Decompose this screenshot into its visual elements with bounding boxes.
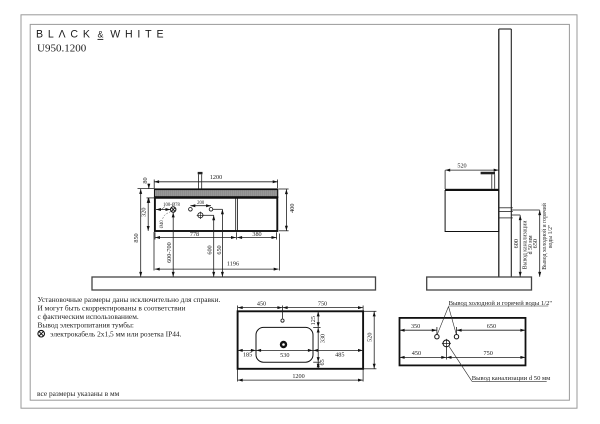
- svg-text:600-700: 600-700: [166, 242, 173, 263]
- svg-text:778: 778: [190, 231, 199, 238]
- svg-text:Вывод электропитания тумбы:: Вывод электропитания тумбы:: [38, 320, 135, 329]
- svg-text:850: 850: [133, 233, 140, 242]
- svg-text:520: 520: [457, 162, 466, 169]
- svg-text:100-Ø78: 100-Ø78: [163, 203, 180, 208]
- svg-text:485: 485: [335, 352, 344, 359]
- svg-text:WHITE: WHITE: [110, 29, 168, 41]
- svg-text:380: 380: [252, 231, 261, 238]
- svg-text:125: 125: [310, 316, 317, 325]
- svg-text:BLΛCK: BLΛCK: [36, 29, 95, 41]
- svg-text:750: 750: [318, 300, 327, 307]
- svg-text:650: 650: [216, 245, 223, 254]
- svg-text:400: 400: [289, 204, 296, 213]
- svg-text:65: 65: [319, 359, 326, 365]
- svg-text:520: 520: [366, 333, 373, 342]
- svg-text:750: 750: [484, 350, 493, 357]
- svg-text:&: &: [98, 30, 104, 40]
- svg-text:600: 600: [513, 239, 520, 248]
- svg-text:80: 80: [142, 177, 149, 183]
- svg-text:530: 530: [280, 352, 289, 359]
- svg-text:U950.1200: U950.1200: [37, 43, 87, 55]
- svg-text:200: 200: [197, 201, 205, 206]
- svg-text:1200: 1200: [210, 174, 222, 181]
- svg-text:1196: 1196: [227, 260, 239, 267]
- svg-text:330: 330: [319, 334, 326, 343]
- svg-text:450: 450: [257, 300, 266, 307]
- svg-text:650: 650: [487, 323, 496, 330]
- svg-text:1200: 1200: [292, 373, 304, 380]
- svg-text:электрокабель 2х1,5 мм или роз: электрокабель 2х1,5 мм или розетка IP44.: [50, 329, 181, 338]
- svg-text:Ø40: Ø40: [160, 220, 165, 229]
- svg-text:600: 600: [206, 245, 213, 254]
- svg-text:320: 320: [141, 208, 148, 217]
- svg-text:все размеры указаны в мм: все размеры указаны в мм: [37, 389, 120, 398]
- svg-text:d 50 мм: d 50 мм: [528, 235, 534, 254]
- svg-text:350: 350: [411, 323, 420, 330]
- svg-text:185: 185: [243, 352, 252, 359]
- svg-text:450: 450: [412, 350, 421, 357]
- svg-text:воды 1/2": воды 1/2": [548, 225, 554, 249]
